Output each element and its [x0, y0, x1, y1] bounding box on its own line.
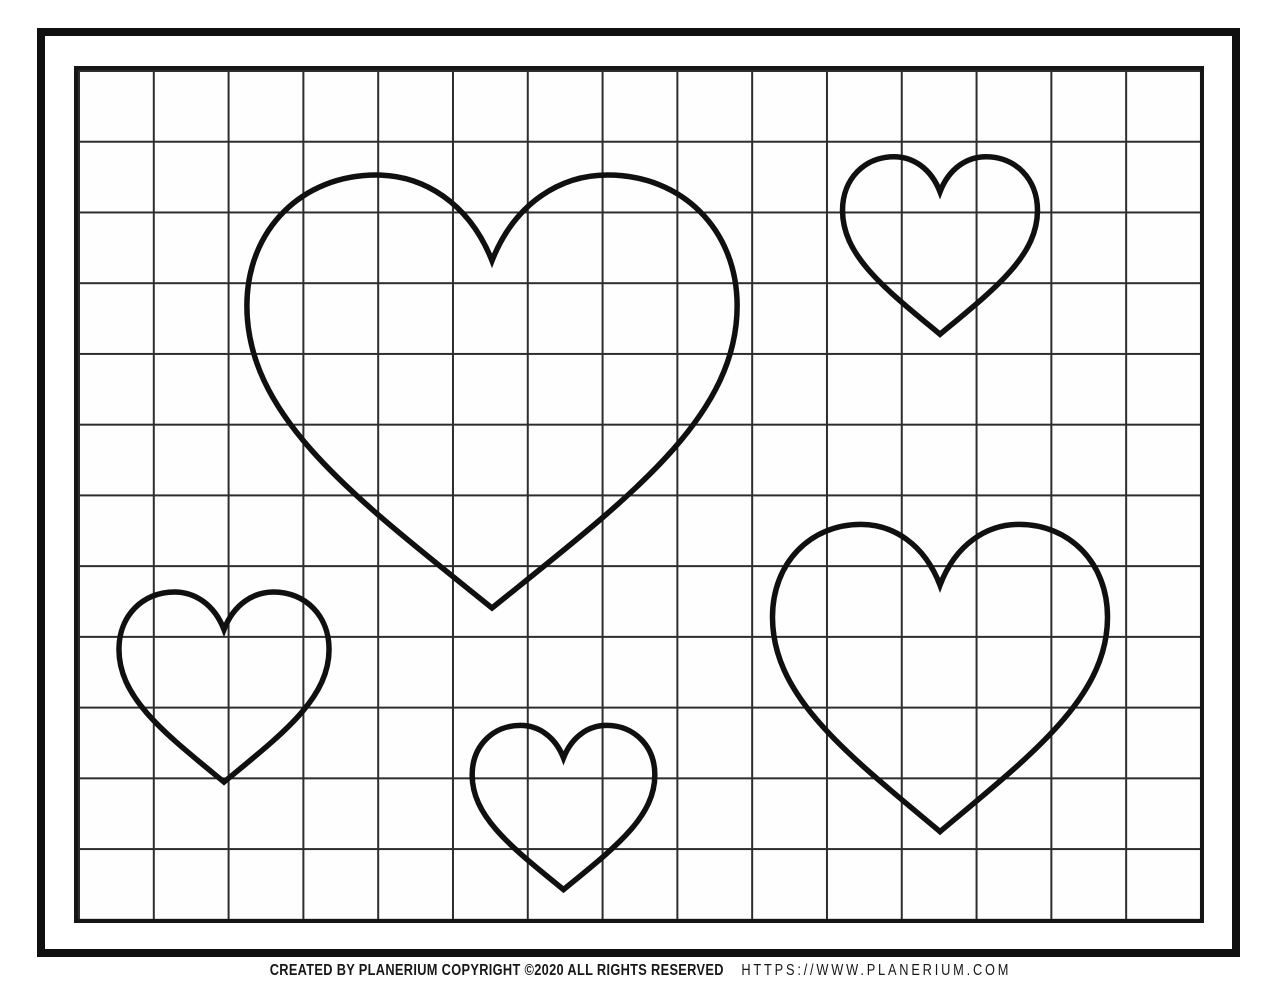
coloring-page: CREATED BY PLANERIUM COPYRIGHT ©2020 ALL…	[0, 0, 1280, 989]
credit-text: CREATED BY PLANERIUM COPYRIGHT ©2020 ALL…	[269, 962, 723, 979]
site-url: HTTPS://WWW.PLANERIUM.COM	[741, 962, 1011, 979]
background-grid	[74, 66, 1204, 923]
footer-credit-line: CREATED BY PLANERIUM COPYRIGHT ©2020 ALL…	[269, 962, 1011, 980]
footer-credit: CREATED BY PLANERIUM COPYRIGHT ©2020 ALL…	[0, 962, 1280, 980]
